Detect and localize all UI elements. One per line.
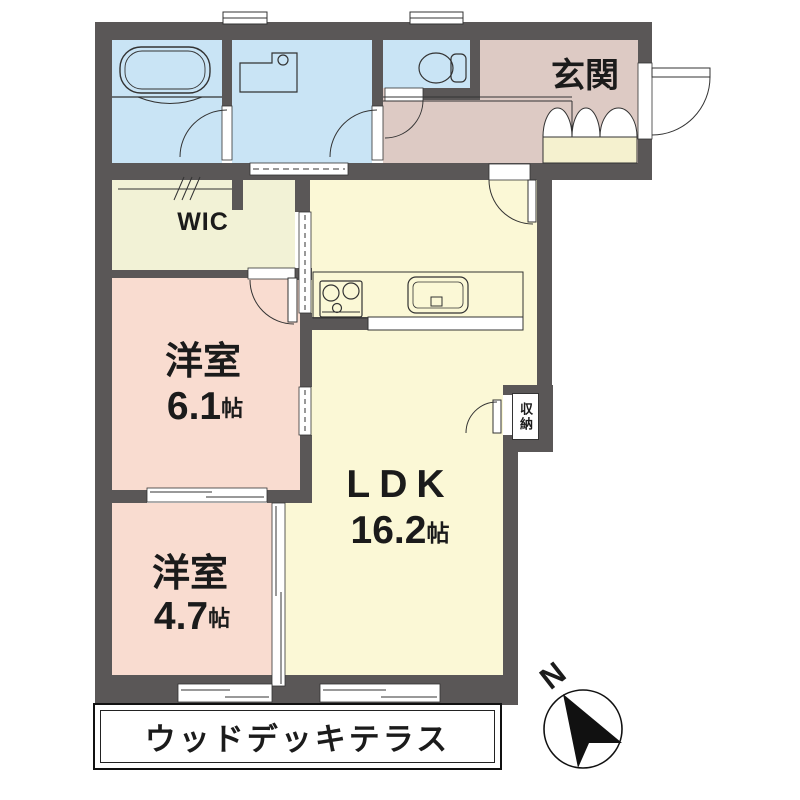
wall-ldk-right: [537, 163, 552, 395]
entrance-label: 玄関: [535, 52, 635, 92]
compass-north-label: N: [523, 647, 582, 706]
bedroom-4-7-sliding-panel: [272, 503, 285, 686]
bedroom-6-1-size: 6.1帖: [150, 386, 260, 428]
wall-wic-bottom: [95, 270, 248, 278]
wall-bottom: [95, 675, 518, 705]
bedroom-6-1-size-unit: 帖: [221, 391, 243, 423]
wall-toilet-bottom: [423, 88, 470, 100]
floor-plan: 収納 ウッドデッキテラス: [0, 0, 800, 800]
wall-top: [95, 22, 652, 40]
wall-toilet-right: [470, 40, 480, 100]
bedroom-4-7-size-unit: 帖: [208, 601, 230, 633]
ldk-size-unit: 帖: [426, 514, 449, 548]
bedroom-6-1-size-value: 6.1: [167, 385, 221, 429]
ldk-label: LDK: [340, 464, 460, 506]
wall-band-mid: [95, 163, 652, 180]
ldk-size: 16.2帖: [340, 510, 460, 552]
bedroom-6-1-label: 洋室: [153, 336, 253, 378]
bedroom-partition-sliding-door: [147, 488, 267, 502]
bedroom-4-7-size: 4.7帖: [137, 596, 247, 638]
bedroom-4-7-size-value: 4.7: [154, 595, 208, 639]
wall-right-lower: [503, 445, 518, 705]
wall-wic-stub: [232, 180, 243, 210]
entrance-door: [638, 63, 710, 139]
wood-deck: ウッドデッキテラス: [93, 703, 502, 770]
room-bathroom: [112, 40, 222, 163]
storage-closet: 収納: [512, 393, 539, 440]
storage-label: 収納: [513, 394, 538, 439]
wall-wash-hall: [372, 40, 383, 110]
wood-deck-border: ウッドデッキテラス: [100, 710, 495, 763]
wall-left: [95, 22, 112, 690]
room-toilet: [383, 40, 470, 88]
wall-partition-right: [267, 490, 312, 503]
wall-right-upper: [638, 22, 652, 65]
compass-icon: [544, 690, 622, 768]
room-ldk-upper: [310, 180, 537, 395]
wall-wic-ldk-top: [295, 163, 310, 212]
room-ldk-left-ext: [285, 503, 310, 675]
wall-kitchen-stub: [300, 317, 368, 330]
wall-wic-corner: [295, 268, 312, 280]
room-washroom: [232, 40, 372, 163]
wic-label: WIC: [170, 207, 236, 237]
wood-deck-label: ウッドデッキテラス: [145, 714, 450, 759]
wall-bath-wash: [222, 40, 232, 110]
wall-partition-left: [95, 490, 147, 503]
bedroom-4-7-label: 洋室: [140, 548, 240, 590]
ldk-size-value: 16.2: [351, 509, 427, 553]
